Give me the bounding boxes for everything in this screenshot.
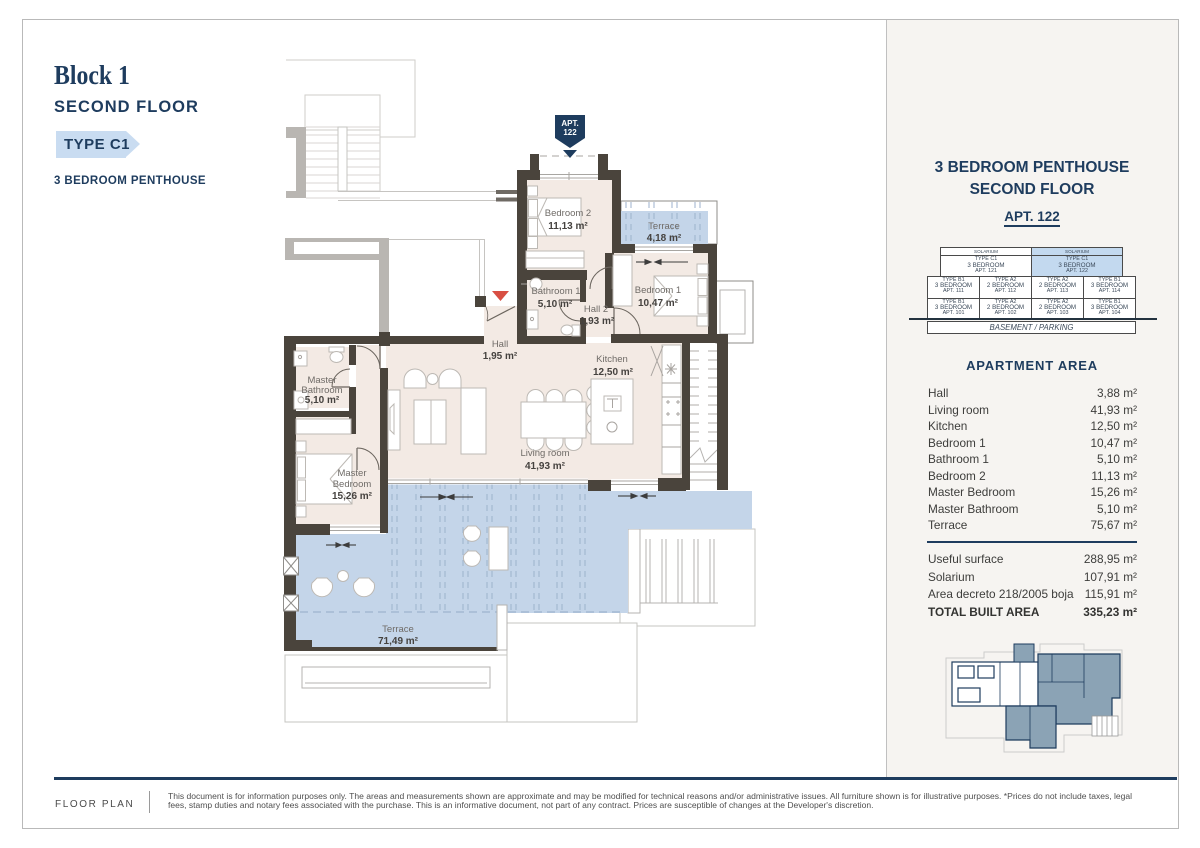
svg-text:10,47 m²: 10,47 m² bbox=[638, 298, 679, 309]
svg-text:Terrace: Terrace bbox=[648, 221, 680, 232]
svg-text:12,50 m²: 12,50 m² bbox=[593, 367, 634, 378]
svg-text:Master: Master bbox=[337, 468, 366, 479]
svg-text:Living room: Living room bbox=[520, 448, 569, 459]
svg-text:1,93 m²: 1,93 m² bbox=[580, 316, 615, 327]
svg-text:15,26 m²: 15,26 m² bbox=[332, 491, 373, 502]
svg-text:Kitchen: Kitchen bbox=[596, 354, 628, 365]
svg-text:Terrace: Terrace bbox=[382, 624, 414, 635]
svg-text:5,10 m²: 5,10 m² bbox=[538, 299, 573, 310]
svg-text:Bathroom 1: Bathroom 1 bbox=[531, 286, 580, 297]
svg-text:Hall 2: Hall 2 bbox=[584, 304, 608, 315]
svg-text:71,49 m²: 71,49 m² bbox=[378, 636, 419, 647]
svg-text:5,10 m²: 5,10 m² bbox=[305, 395, 340, 406]
svg-text:4,18 m²: 4,18 m² bbox=[647, 233, 682, 244]
svg-text:41,93 m²: 41,93 m² bbox=[525, 461, 566, 472]
svg-text:Bedroom 2: Bedroom 2 bbox=[545, 208, 591, 219]
svg-text:1,95 m²: 1,95 m² bbox=[483, 351, 518, 362]
svg-text:11,13 m²: 11,13 m² bbox=[548, 221, 588, 232]
svg-text:122: 122 bbox=[563, 128, 577, 137]
svg-text:APT.: APT. bbox=[561, 119, 578, 128]
svg-text:Bedroom: Bedroom bbox=[333, 479, 372, 490]
svg-text:Hall: Hall bbox=[492, 339, 508, 350]
svg-text:Bedroom 1: Bedroom 1 bbox=[635, 285, 681, 296]
